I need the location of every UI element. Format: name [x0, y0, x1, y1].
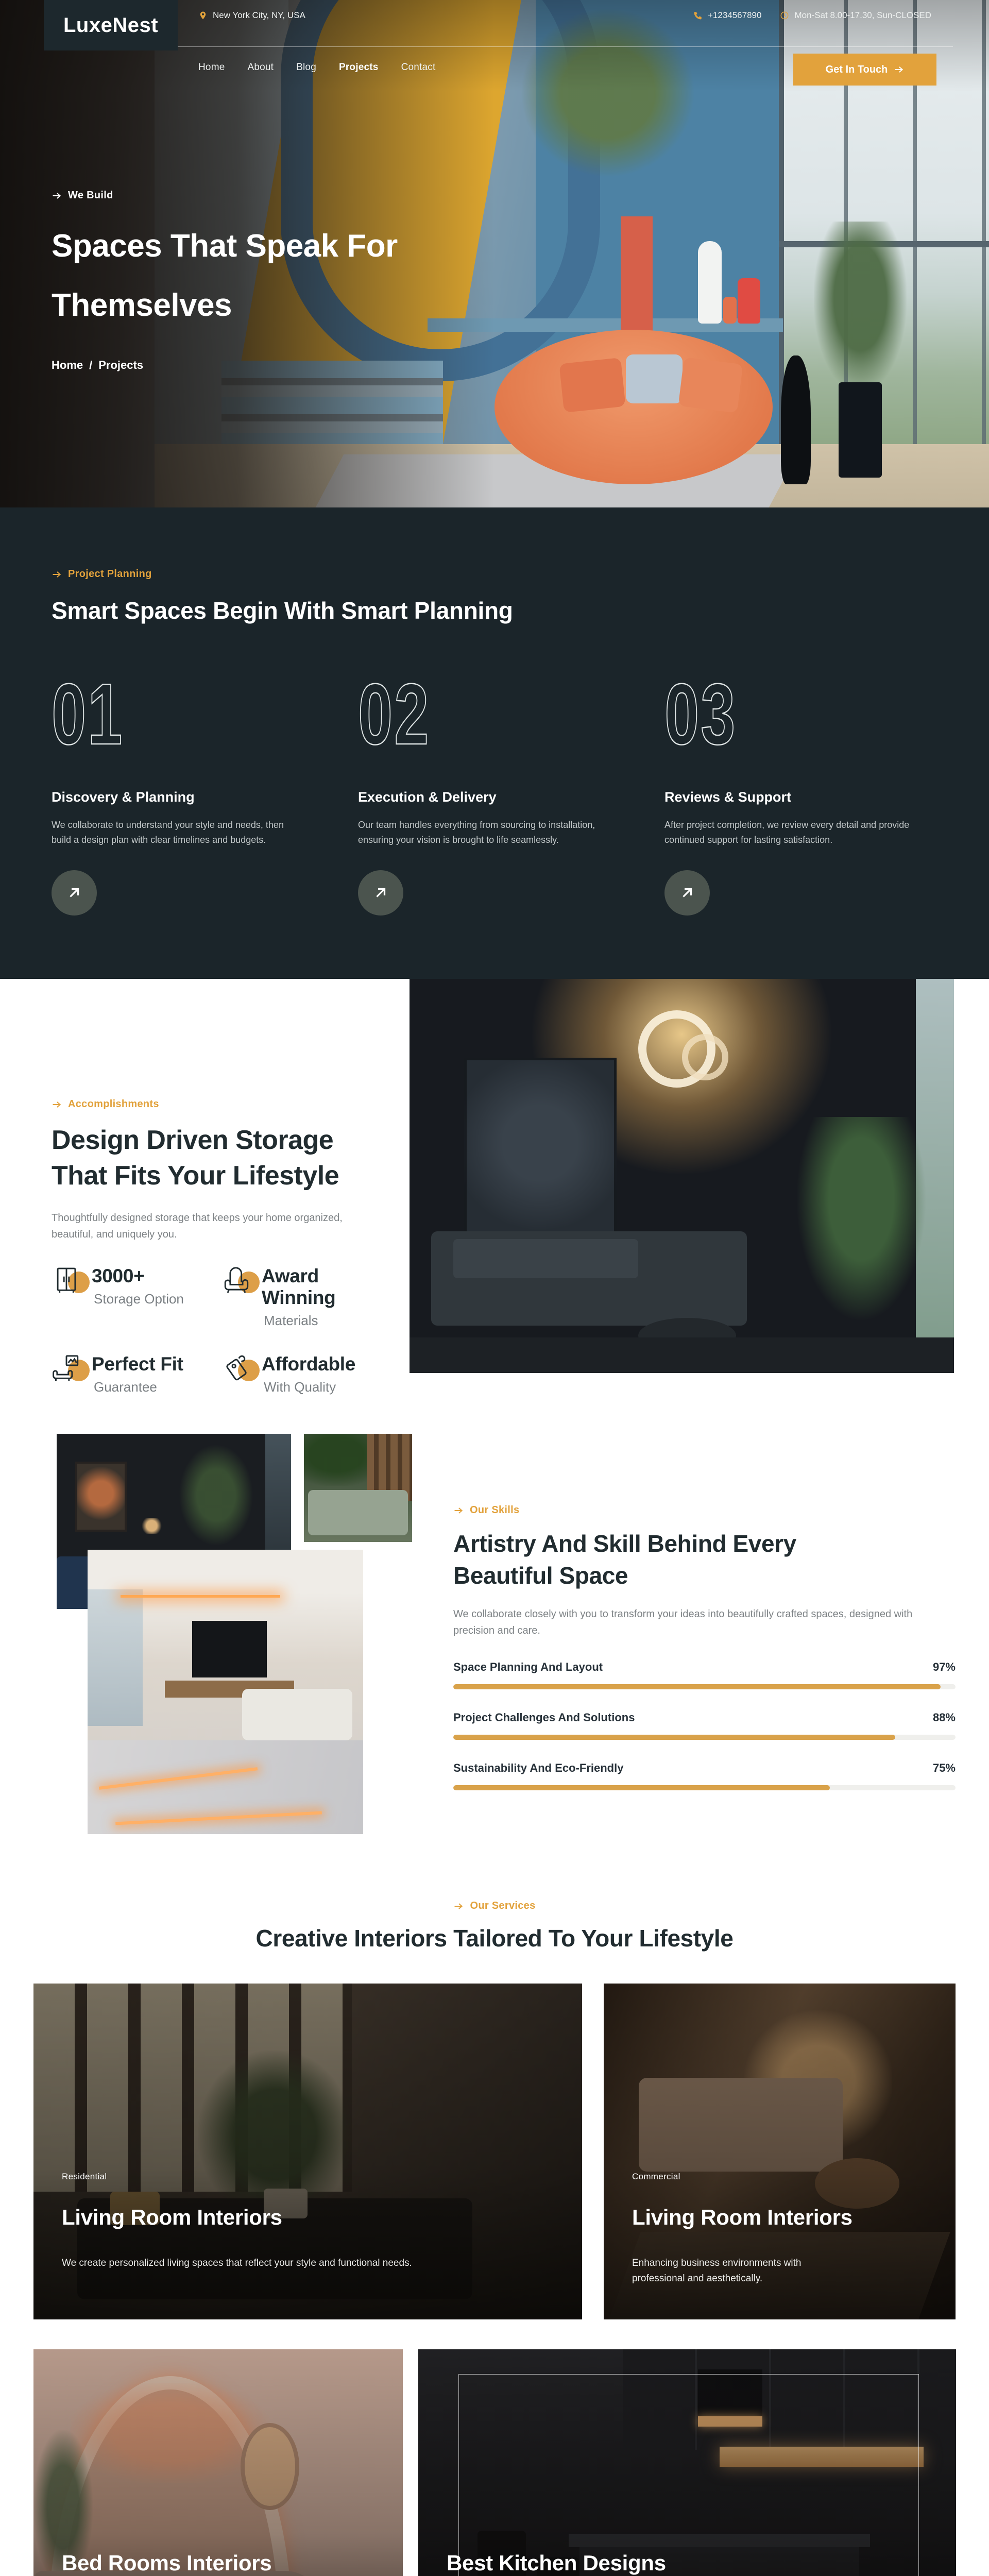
step-title: Discovery & Planning [52, 789, 306, 805]
arrow-up-right-icon [679, 885, 695, 901]
stats-grid: 3000+ Storage Option Award Winning Mater… [52, 1265, 402, 1395]
nav-item-about[interactable]: About [247, 62, 274, 73]
skills-label-text: Our Skills [470, 1504, 519, 1516]
topbar-hours: Mon-Sat 8.00-17.30, Sun-CLOSED [780, 10, 931, 21]
accomplishments-heading: Design Driven Storage That Fits Your Lif… [52, 1123, 402, 1193]
step-description: We collaborate to understand your style … [52, 818, 299, 848]
photo-window [265, 1434, 291, 1560]
accomplishments-section: Accomplishments Design Driven Storage Th… [0, 979, 989, 1432]
planning-steps: 01 Discovery & Planning We collaborate t… [52, 671, 937, 916]
nav-item-blog[interactable]: Blog [296, 62, 316, 73]
hero-section: LuxeNest New York City, NY, USA +1234567… [0, 0, 989, 507]
progress-fill [453, 1684, 941, 1689]
step-number: 02 [358, 671, 541, 757]
armchair-icon [221, 1265, 253, 1297]
card-badge: Commercial [632, 2172, 680, 2182]
accomplishments-label: Accomplishments [52, 1098, 402, 1110]
services-heading: Creative Interiors Tailored To Your Life… [256, 1924, 734, 1952]
breadcrumb: Home / Projects [52, 359, 398, 372]
nav-item-projects[interactable]: Projects [339, 62, 379, 73]
planning-step-2: 02 Execution & Delivery Our team handles… [358, 671, 613, 916]
card-inner-border [458, 2374, 919, 2576]
luxenest-projects-page: LuxeNest New York City, NY, USA +1234567… [0, 0, 989, 2576]
arrow-right-icon [52, 1099, 62, 1110]
photo-floor [410, 1337, 954, 1373]
arrow-up-right-icon [373, 885, 388, 901]
stat-award: Award Winning Materials [221, 1265, 391, 1329]
skills-heading-line2: Beautiful Space [453, 1560, 956, 1591]
topbar-right: +1234567890 Mon-Sat 8.00-17.30, Sun-CLOS… [693, 10, 931, 21]
skill-bar-head: Project Challenges And Solutions 88% [453, 1711, 956, 1724]
stat-subtitle: Guarantee [94, 1379, 183, 1395]
skills-description: We collaborate closely with you to trans… [453, 1606, 917, 1639]
skills-heading: Artistry And Skill Behind Every Beautifu… [453, 1528, 956, 1591]
topbar: New York City, NY, USA +1234567890 Mon-S… [198, 10, 931, 21]
stat-title: 3000+ [92, 1265, 184, 1287]
topbar-divider [178, 46, 953, 47]
planning-step-1: 01 Discovery & Planning We collaborate t… [52, 671, 306, 916]
step-description: Our team handles everything from sourcin… [358, 818, 605, 848]
photo-cushion [453, 1239, 638, 1279]
accomplishments-label-text: Accomplishments [68, 1098, 159, 1110]
progress-track [453, 1735, 956, 1740]
project-planning-inner: Project Planning Smart Spaces Begin With… [52, 568, 937, 916]
accomplishments-heading-line1: Design Driven Storage [52, 1123, 402, 1158]
stat-title: Affordable [262, 1353, 355, 1375]
page-title-line1: Spaces That Speak For [52, 217, 398, 276]
skill-bar-percent: 88% [933, 1711, 956, 1724]
location-pin-icon [198, 11, 208, 20]
accomplishments-photo [410, 979, 954, 1373]
stat-subtitle: Storage Option [94, 1291, 184, 1307]
project-planning-section: Project Planning Smart Spaces Begin With… [0, 507, 989, 979]
skill-bar-space-planning: Space Planning And Layout 97% [453, 1660, 956, 1689]
main-nav: Home About Blog Projects Contact [198, 62, 435, 73]
skill-bar-head: Space Planning And Layout 97% [453, 1660, 956, 1674]
service-card-kitchen[interactable]: Best Kitchen Designs Elevating kitchen s… [418, 2349, 956, 2576]
progress-track [453, 1785, 956, 1790]
brand-logo-text: LuxeNest [63, 14, 158, 37]
step-description: After project completion, we review ever… [664, 818, 912, 848]
nav-item-contact[interactable]: Contact [401, 62, 436, 73]
stat-title: Award Winning [262, 1265, 391, 1309]
hero-copy: We Build Spaces That Speak For Themselve… [52, 190, 398, 372]
card-description: Enhancing business environments with pro… [632, 2256, 854, 2286]
clock-icon [780, 11, 789, 20]
photo-lamp-glow [141, 1518, 162, 1534]
planning-label: Project Planning [52, 568, 937, 580]
stat-text: Perfect Fit Guarantee [92, 1353, 183, 1395]
step-arrow-button[interactable] [52, 870, 97, 916]
arrow-right-icon [453, 1505, 464, 1516]
skills-section: Our Skills Artistry And Skill Behind Eve… [0, 1432, 989, 1875]
phone-icon [693, 11, 703, 20]
photo-led-strip [121, 1595, 280, 1598]
page-title: Spaces That Speak For Themselves [52, 217, 398, 335]
step-arrow-button[interactable] [358, 870, 403, 916]
nav-item-home[interactable]: Home [198, 62, 225, 73]
stat-title: Perfect Fit [92, 1353, 183, 1375]
arrow-up-right-icon [66, 885, 82, 901]
photo-chandelier-ring [682, 1034, 728, 1080]
hero-tagline-text: We Build [68, 190, 113, 201]
card-badge: Residential [62, 2172, 107, 2182]
accomplishments-content: Accomplishments Design Driven Storage Th… [52, 1098, 402, 1395]
services-section: Our Services Creative Interiors Tailored… [0, 1875, 989, 2576]
card-title: Living Room Interiors [62, 2205, 282, 2230]
accomplishments-description: Thoughtfully designed storage that keeps… [52, 1210, 350, 1243]
gallery-photo-warm-living-room [88, 1550, 363, 1834]
card-title: Best Kitchen Designs [447, 2551, 666, 2575]
skill-bar-label: Sustainability And Eco-Friendly [453, 1761, 623, 1775]
get-in-touch-button[interactable]: Get In Touch [793, 54, 936, 86]
skills-label: Our Skills [453, 1504, 956, 1516]
progress-fill [453, 1735, 895, 1740]
skill-bar-percent: 75% [933, 1761, 956, 1775]
photo-wall-art [464, 1058, 617, 1247]
service-card-commercial-living-room[interactable]: Commercial Living Room Interiors Enhanci… [604, 1984, 956, 2319]
topbar-location: New York City, NY, USA [198, 10, 305, 21]
photo-green-sofa [308, 1490, 407, 1535]
stat-storage: 3000+ Storage Option [52, 1265, 221, 1329]
progress-track [453, 1684, 956, 1689]
skill-bar-label: Space Planning And Layout [453, 1660, 603, 1674]
step-title: Execution & Delivery [358, 789, 613, 805]
stat-fit: Perfect Fit Guarantee [52, 1353, 221, 1395]
topbar-phone[interactable]: +1234567890 [693, 10, 761, 21]
step-number: 03 [664, 671, 848, 757]
services-label-text: Our Services [470, 1900, 535, 1912]
service-card-residential-living-room[interactable]: Residential Living Room Interiors We cre… [33, 1984, 582, 2319]
arrow-right-icon [894, 64, 904, 75]
breadcrumb-home-link[interactable]: Home [52, 359, 83, 372]
planning-heading: Smart Spaces Begin With Smart Planning [52, 597, 937, 624]
skill-bar-project-challenges: Project Challenges And Solutions 88% [453, 1711, 956, 1740]
skill-bar-head: Sustainability And Eco-Friendly 75% [453, 1761, 956, 1775]
topbar-location-text: New York City, NY, USA [213, 10, 305, 21]
arrow-right-icon [453, 1901, 464, 1911]
page-title-line2: Themselves [52, 276, 398, 335]
photo-tv [192, 1621, 266, 1677]
stat-text: Award Winning Materials [262, 1265, 391, 1329]
topbar-hours-text: Mon-Sat 8.00-17.30, Sun-CLOSED [794, 10, 931, 21]
photo-marble-floor [88, 1740, 363, 1834]
card-title: Bed Rooms Interiors [62, 2551, 271, 2575]
price-tag-icon [221, 1353, 253, 1385]
get-in-touch-label: Get In Touch [826, 64, 888, 76]
hero-tagline: We Build [52, 190, 398, 201]
arrow-right-icon [52, 191, 62, 201]
photo-white-sofa [242, 1689, 352, 1740]
skill-bar-label: Project Challenges And Solutions [453, 1711, 635, 1724]
skills-content: Our Skills Artistry And Skill Behind Eve… [453, 1504, 956, 1790]
skill-bar-percent: 97% [933, 1660, 956, 1674]
stat-text: 3000+ Storage Option [92, 1265, 184, 1329]
arrow-right-icon [52, 569, 62, 580]
planning-label-text: Project Planning [68, 568, 152, 580]
photo-plant [179, 1444, 254, 1546]
wardrobe-icon [52, 1265, 83, 1297]
topbar-phone-text: +1234567890 [708, 10, 761, 21]
card-description: We create personalized living spaces tha… [62, 2256, 412, 2270]
sofa-icon [52, 1353, 83, 1385]
step-number: 01 [52, 671, 235, 757]
stat-subtitle: Materials [264, 1313, 391, 1329]
photo-plant [796, 1117, 927, 1322]
step-title: Reviews & Support [664, 789, 919, 805]
card-title: Living Room Interiors [632, 2205, 852, 2230]
services-header: Our Services Creative Interiors Tailored… [0, 1900, 989, 1952]
service-card-bedrooms[interactable]: Bed Rooms Interiors Crafting personal re… [33, 2349, 403, 2576]
stat-affordable: Affordable With Quality [221, 1353, 391, 1395]
photo-window [88, 1589, 143, 1726]
card-overlay [33, 2349, 403, 2576]
accomplishments-heading-line2: That Fits Your Lifestyle [52, 1158, 402, 1194]
progress-fill [453, 1785, 830, 1790]
skills-heading-line1: Artistry And Skill Behind Every [453, 1528, 956, 1560]
breadcrumb-separator: / [89, 359, 92, 372]
photo-painting [75, 1462, 127, 1532]
planning-step-3: 03 Reviews & Support After project compl… [664, 671, 919, 916]
stat-text: Affordable With Quality [262, 1353, 355, 1395]
stat-subtitle: With Quality [264, 1379, 355, 1395]
services-label: Our Services [453, 1900, 535, 1912]
breadcrumb-current: Projects [98, 359, 143, 372]
skill-bar-sustainability: Sustainability And Eco-Friendly 75% [453, 1761, 956, 1790]
brand-logo[interactable]: LuxeNest [44, 0, 178, 50]
gallery-photo-green-patio [304, 1434, 412, 1542]
step-arrow-button[interactable] [664, 870, 710, 916]
